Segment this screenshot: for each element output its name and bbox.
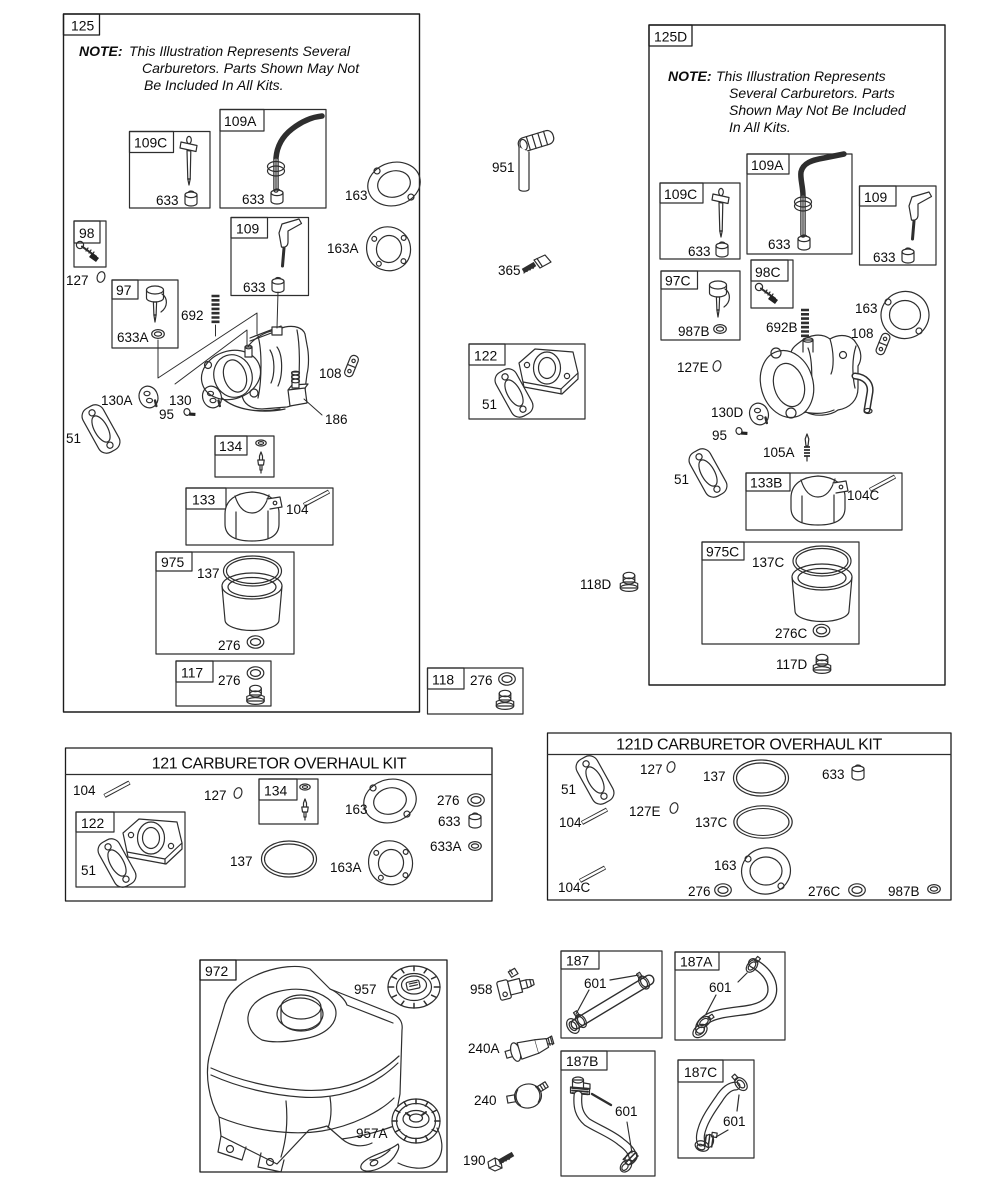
svg-text:601: 601 [615, 1104, 638, 1119]
svg-text:Carburetors. Parts Shown May N: Carburetors. Parts Shown May Not [142, 60, 360, 76]
svg-text:121 CARBURETOR OVERHAUL KIT: 121 CARBURETOR OVERHAUL KIT [152, 756, 407, 773]
svg-text:109A: 109A [224, 113, 257, 129]
svg-text:127E: 127E [629, 804, 661, 819]
svg-text:127E: 127E [677, 360, 709, 375]
svg-text:109C: 109C [134, 135, 167, 151]
svg-text:276: 276 [218, 673, 241, 688]
svg-text:633: 633 [822, 767, 845, 782]
svg-text:Several Carburetors. Parts: Several Carburetors. Parts [729, 85, 895, 101]
svg-text:163A: 163A [327, 241, 359, 256]
svg-text:633A: 633A [117, 330, 149, 345]
svg-text:125: 125 [71, 18, 94, 34]
svg-text:601: 601 [723, 1114, 746, 1129]
svg-text:134: 134 [264, 783, 287, 799]
svg-text:97C: 97C [665, 273, 690, 289]
svg-text:276C: 276C [808, 884, 841, 899]
svg-text:51: 51 [482, 397, 497, 412]
svg-text:951: 951 [492, 160, 515, 175]
svg-text:137: 137 [230, 854, 253, 869]
svg-text:365: 365 [498, 263, 521, 278]
svg-text:958: 958 [470, 982, 493, 997]
svg-text:NOTE:: NOTE: [79, 43, 123, 59]
svg-text:601: 601 [709, 980, 732, 995]
svg-text:51: 51 [81, 863, 96, 878]
svg-text:187B: 187B [566, 1053, 598, 1069]
svg-text:109A: 109A [751, 157, 784, 173]
svg-text:276C: 276C [775, 626, 808, 641]
svg-text:240A: 240A [468, 1041, 500, 1056]
svg-text:104: 104 [559, 815, 582, 830]
svg-text:633: 633 [873, 250, 896, 265]
svg-text:104: 104 [73, 783, 96, 798]
svg-text:97: 97 [116, 282, 132, 298]
svg-text:133B: 133B [750, 475, 782, 491]
svg-text:187C: 187C [684, 1064, 717, 1080]
svg-text:276: 276 [470, 673, 493, 688]
svg-text:In All Kits.: In All Kits. [729, 119, 791, 135]
svg-text:127: 127 [204, 788, 227, 803]
svg-text:987B: 987B [888, 884, 920, 899]
svg-text:187A: 187A [680, 954, 713, 970]
svg-text:51: 51 [66, 431, 81, 446]
svg-text:137C: 137C [752, 555, 785, 570]
svg-text:972: 972 [205, 963, 228, 979]
svg-text:987B: 987B [678, 324, 710, 339]
svg-text:957A: 957A [356, 1126, 388, 1141]
svg-text:This Illustration Represents: This Illustration Represents [716, 68, 886, 84]
svg-text:190: 190 [463, 1153, 486, 1168]
svg-text:137C: 137C [695, 815, 728, 830]
svg-text:692B: 692B [766, 320, 798, 335]
svg-text:975C: 975C [706, 544, 739, 560]
svg-text:163: 163 [345, 188, 368, 203]
svg-text:122: 122 [81, 815, 104, 831]
svg-text:98: 98 [79, 225, 95, 241]
svg-text:95: 95 [712, 428, 727, 443]
svg-text:104C: 104C [847, 488, 880, 503]
svg-text:692: 692 [181, 308, 204, 323]
svg-text:134: 134 [219, 438, 242, 454]
svg-text:127: 127 [66, 273, 89, 288]
svg-text:276: 276 [437, 793, 460, 808]
svg-text:163: 163 [345, 802, 368, 817]
svg-text:105A: 105A [763, 445, 795, 460]
svg-text:137: 137 [197, 566, 220, 581]
svg-text:Shown May Not Be Included: Shown May Not Be Included [729, 102, 907, 118]
svg-text:633: 633 [438, 814, 461, 829]
svg-text:240: 240 [474, 1093, 497, 1108]
svg-text:118: 118 [432, 672, 454, 688]
svg-text:This Illustration Represents S: This Illustration Represents Several [129, 43, 351, 59]
svg-text:108: 108 [851, 326, 874, 341]
svg-text:117: 117 [181, 665, 203, 681]
svg-text:163: 163 [855, 301, 878, 316]
svg-text:125D: 125D [654, 29, 687, 45]
svg-text:163: 163 [714, 858, 737, 873]
svg-text:109: 109 [236, 221, 259, 237]
svg-text:51: 51 [561, 782, 576, 797]
svg-text:121D CARBURETOR OVERHAUL KIT: 121D CARBURETOR OVERHAUL KIT [616, 737, 882, 754]
svg-text:118D: 118D [580, 577, 612, 592]
svg-text:276: 276 [688, 884, 711, 899]
svg-text:51: 51 [674, 472, 689, 487]
svg-text:187: 187 [566, 953, 589, 969]
svg-text:137: 137 [703, 769, 726, 784]
svg-text:122: 122 [474, 348, 497, 364]
svg-text:633A: 633A [430, 839, 462, 854]
svg-text:163A: 163A [330, 860, 362, 875]
svg-text:276: 276 [218, 638, 241, 653]
svg-text:633: 633 [243, 280, 266, 295]
svg-text:109: 109 [864, 189, 887, 205]
svg-text:95: 95 [159, 407, 174, 422]
svg-text:104C: 104C [558, 880, 591, 895]
svg-text:186: 186 [325, 412, 348, 427]
svg-text:633: 633 [156, 193, 179, 208]
svg-text:127: 127 [640, 762, 663, 777]
svg-text:130: 130 [169, 393, 192, 408]
svg-text:108: 108 [319, 366, 342, 381]
svg-text:Be Included In All Kits.: Be Included In All Kits. [144, 77, 284, 93]
svg-text:133: 133 [192, 492, 215, 508]
svg-text:130A: 130A [101, 393, 133, 408]
svg-text:975: 975 [161, 554, 184, 570]
svg-text:957: 957 [354, 982, 377, 997]
svg-text:633: 633 [768, 237, 791, 252]
svg-text:601: 601 [584, 976, 607, 991]
svg-text:NOTE:: NOTE: [668, 68, 712, 84]
svg-text:130D: 130D [711, 405, 744, 420]
svg-text:633: 633 [688, 244, 711, 259]
svg-text:117D: 117D [776, 657, 808, 672]
svg-text:633: 633 [242, 192, 265, 207]
svg-text:104: 104 [286, 502, 309, 517]
svg-text:98C: 98C [755, 264, 780, 280]
svg-text:109C: 109C [664, 186, 697, 202]
